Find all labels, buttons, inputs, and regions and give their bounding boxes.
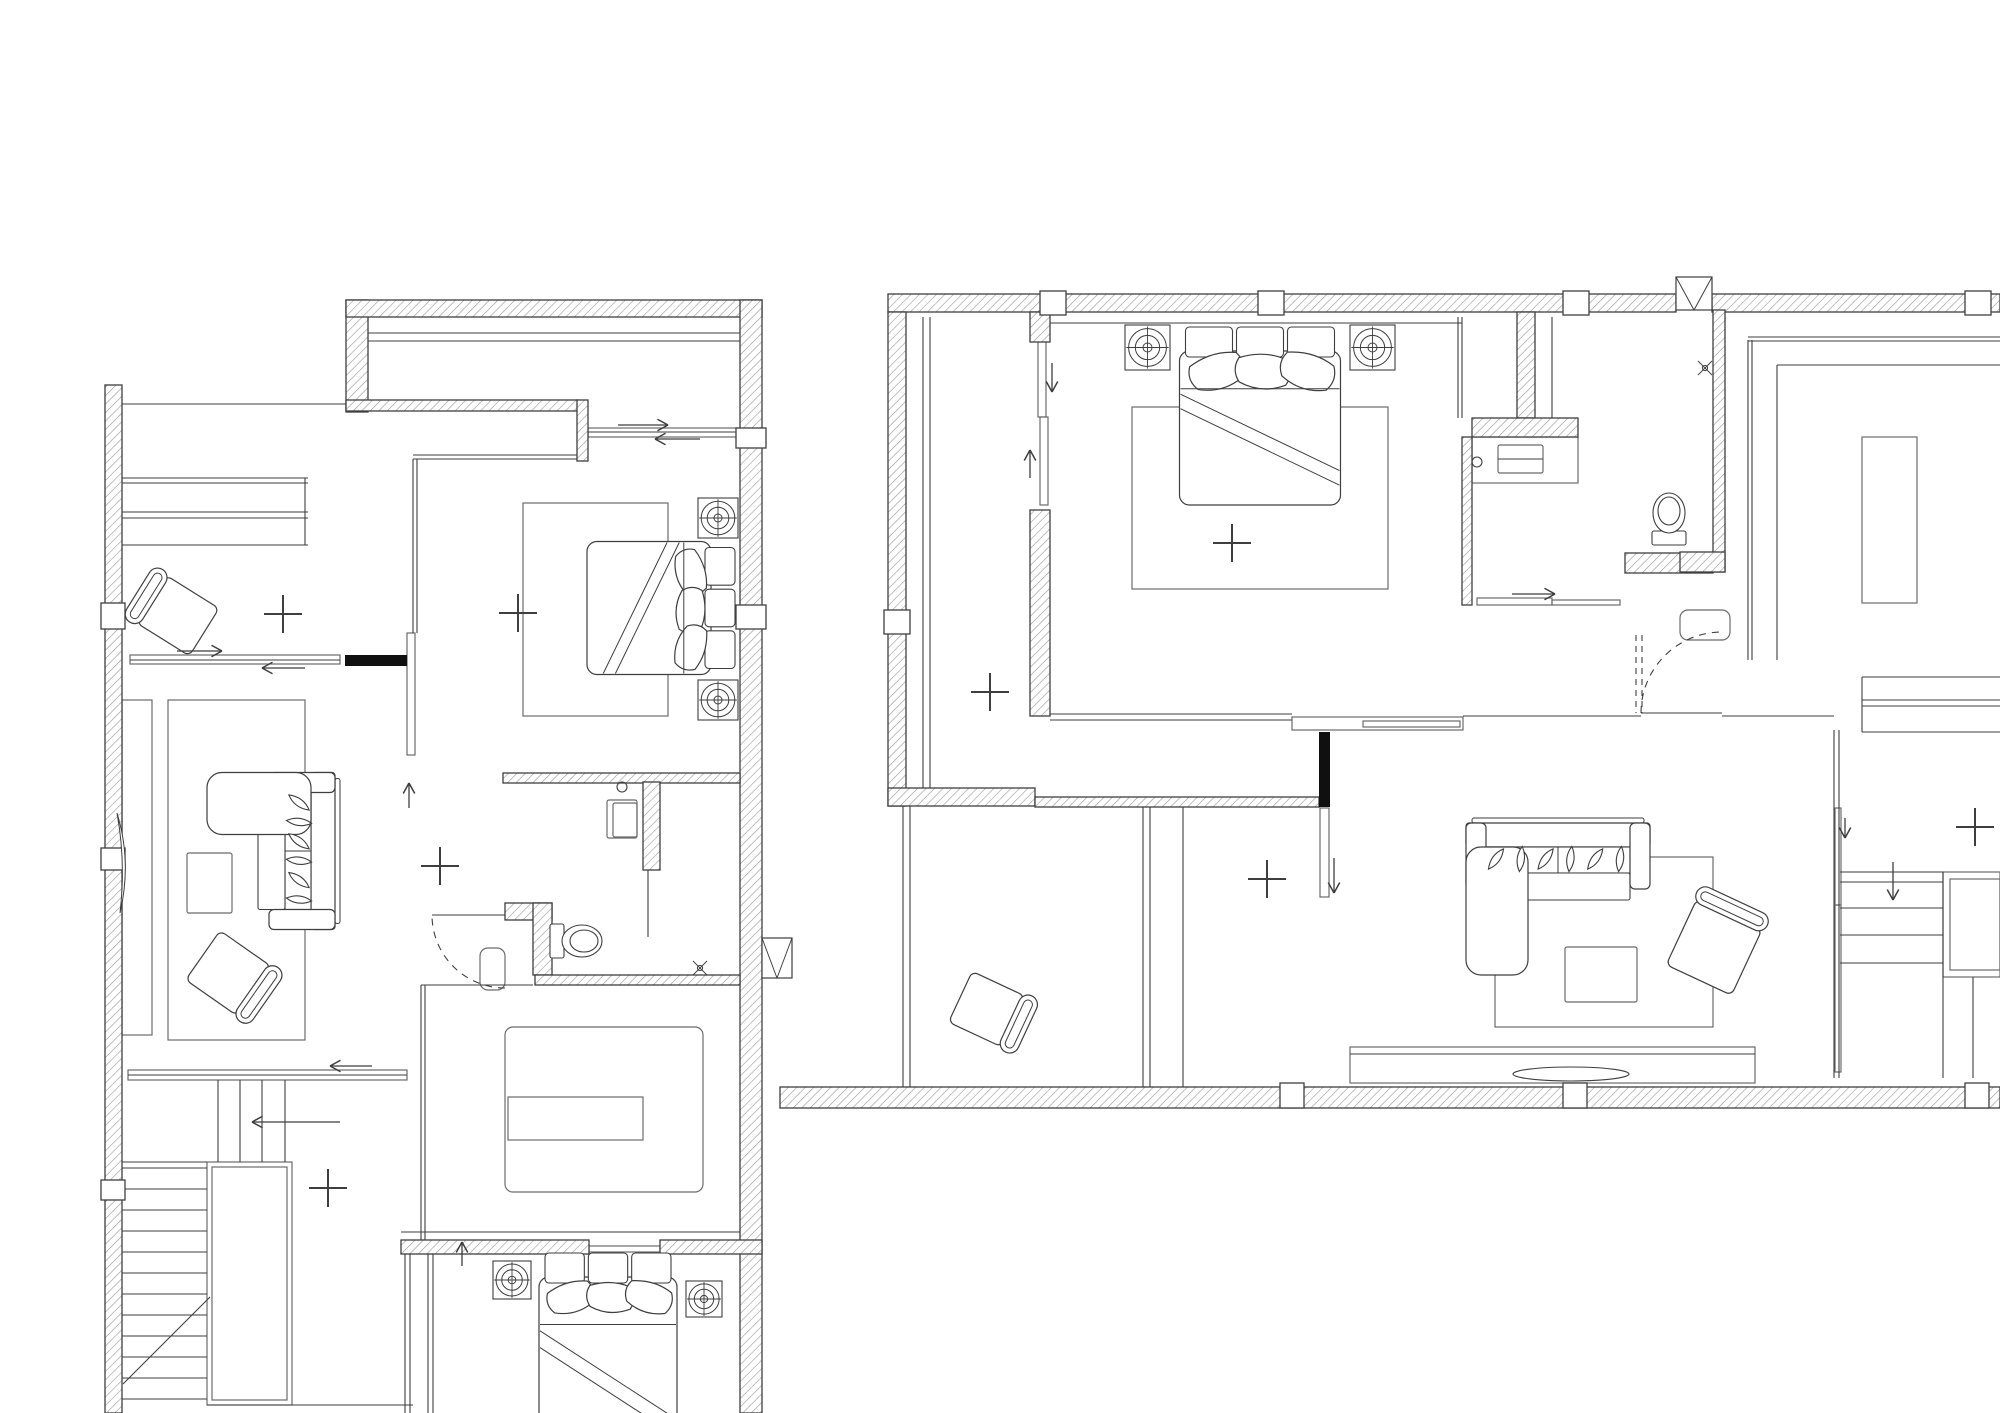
sofa-back (311, 773, 335, 930)
headboard-cushion (705, 589, 735, 627)
furniture-outline (1363, 721, 1460, 727)
arrow-head (211, 651, 222, 657)
right-floor-plan (780, 277, 2000, 1108)
wall-column (1040, 291, 1066, 315)
fixture-tick (1698, 368, 1705, 375)
bed (539, 1253, 677, 1413)
arrow-head (1887, 889, 1893, 900)
hatched-wall (346, 300, 762, 317)
hatched-wall (1035, 797, 1319, 807)
furniture-outline (122, 700, 152, 1035)
furniture-outline (207, 1162, 292, 1405)
floor-plan-canvas (0, 0, 2000, 1413)
fixture-tick (1705, 368, 1712, 375)
hatched-wall (1030, 510, 1050, 716)
armchair (1663, 884, 1771, 997)
arrow-head (1893, 889, 1899, 900)
wall-line (123, 1297, 210, 1384)
furniture-outline (613, 803, 637, 837)
headboard-cushion (705, 548, 735, 586)
sofa-armrest (269, 910, 335, 930)
arrow-head (262, 668, 273, 674)
sofa (207, 773, 340, 930)
headboard-cushion (1237, 327, 1284, 357)
arrow-head (1030, 450, 1036, 461)
furniture-outline (480, 948, 505, 990)
solid-wall-segment (1319, 732, 1330, 807)
bed (587, 542, 735, 675)
armchair (184, 928, 286, 1027)
arrow-head (330, 1060, 341, 1066)
sofa-back-rail (1472, 818, 1644, 823)
left-floor-plan (101, 300, 792, 1413)
arrow-head (655, 433, 666, 439)
wall-column (736, 605, 766, 629)
hatched-wall (577, 400, 588, 461)
furniture-outline (1292, 717, 1463, 730)
furniture-outline (505, 1027, 703, 1192)
toilet (550, 924, 602, 958)
hatched-wall (1462, 437, 1472, 605)
hatched-wall (1517, 312, 1535, 418)
arrow-head (1845, 827, 1851, 838)
arrow-head (330, 1066, 341, 1072)
arrow-head (657, 419, 668, 425)
headboard-cushion (588, 1253, 627, 1283)
arrow-head (1024, 450, 1030, 461)
headboard-cushion (632, 1253, 671, 1283)
furniture-outline (508, 1097, 643, 1140)
arrow-head (1052, 381, 1058, 392)
fixture-tick (1698, 361, 1705, 368)
wall-column (101, 603, 125, 629)
hatched-wall (1680, 552, 1725, 572)
arrow-head (1839, 827, 1845, 838)
furniture-outline (1950, 879, 2000, 970)
armchair (122, 565, 221, 659)
furniture-outline (187, 853, 232, 913)
arrow-head (1544, 594, 1555, 600)
furniture-outline (407, 633, 415, 755)
furniture-outline (212, 1167, 287, 1400)
arrow-head (655, 439, 666, 445)
wall-column (1563, 291, 1589, 315)
fixture-tick (1705, 361, 1712, 368)
arrow-head (262, 662, 273, 668)
furniture-outline (1472, 437, 1578, 483)
solid-wall-segment (345, 655, 407, 666)
wall-column (736, 428, 766, 448)
bed (1180, 327, 1341, 505)
hatched-wall (346, 400, 578, 411)
hatched-wall (1472, 418, 1578, 437)
tv-symbol (1513, 1067, 1629, 1081)
arrow-head (211, 645, 222, 651)
headboard-cushion (545, 1253, 584, 1283)
furniture-outline (1862, 437, 1917, 603)
door-swing-arc (432, 915, 505, 988)
headboard-cushion (705, 631, 735, 669)
furniture-outline (1040, 417, 1048, 505)
fixture-tick (700, 968, 707, 975)
furniture-outline (1835, 808, 1841, 905)
hatched-wall (888, 788, 1035, 806)
sofa-armrest (1630, 823, 1650, 889)
wall-column (1258, 291, 1284, 315)
furniture-outline (607, 800, 637, 838)
arrow-head (1334, 882, 1340, 893)
faucet-symbol (1472, 457, 1482, 467)
vent-box (1676, 277, 1712, 310)
furniture-outline (589, 1246, 660, 1252)
wall-column (1280, 1083, 1304, 1108)
wall-column (884, 610, 910, 634)
hatched-wall (643, 782, 660, 870)
sofa-back (1466, 823, 1650, 847)
arrow-head (252, 1116, 263, 1122)
furniture-outline (1320, 808, 1329, 897)
furniture-outline (1477, 598, 1552, 605)
armchair (947, 969, 1040, 1056)
hatched-wall (533, 903, 552, 975)
fixture-tick (693, 968, 700, 975)
hatched-wall (1030, 312, 1050, 342)
wall-column (1965, 291, 1991, 315)
arrow-head (403, 783, 409, 794)
furniture-outline (1943, 872, 2000, 977)
hatched-wall (401, 1240, 589, 1254)
arrow-head (409, 783, 415, 794)
wall-column (101, 1180, 125, 1200)
furniture-outline (1565, 947, 1637, 1002)
sofa-back-rail (335, 779, 340, 924)
hatched-wall (105, 385, 122, 1413)
toilet (1652, 493, 1686, 545)
arrow-head (1544, 588, 1555, 594)
arrow-head (1046, 381, 1052, 392)
sofa (1466, 818, 1650, 975)
furniture-outline (1350, 1047, 1755, 1083)
wall-column (1563, 1083, 1587, 1108)
furniture-outline (1835, 905, 1841, 1072)
vent-box (762, 938, 792, 978)
wall-column (1965, 1083, 1989, 1108)
hatched-wall (1712, 294, 2000, 312)
hatched-wall (888, 312, 906, 806)
arrow-head (252, 1122, 263, 1128)
hatched-wall (1713, 310, 1725, 572)
furniture-outline (1552, 600, 1620, 605)
fixture-tick (700, 961, 707, 968)
furniture-outline (1680, 610, 1730, 640)
furniture-outline (1038, 340, 1046, 417)
door-swing-arc (1641, 632, 1722, 713)
fixture-tick (693, 961, 700, 968)
floor-plan-stage (0, 0, 2000, 1413)
hatched-wall (660, 1240, 762, 1254)
hatched-wall (780, 1087, 2000, 1108)
hatched-wall (535, 975, 740, 985)
